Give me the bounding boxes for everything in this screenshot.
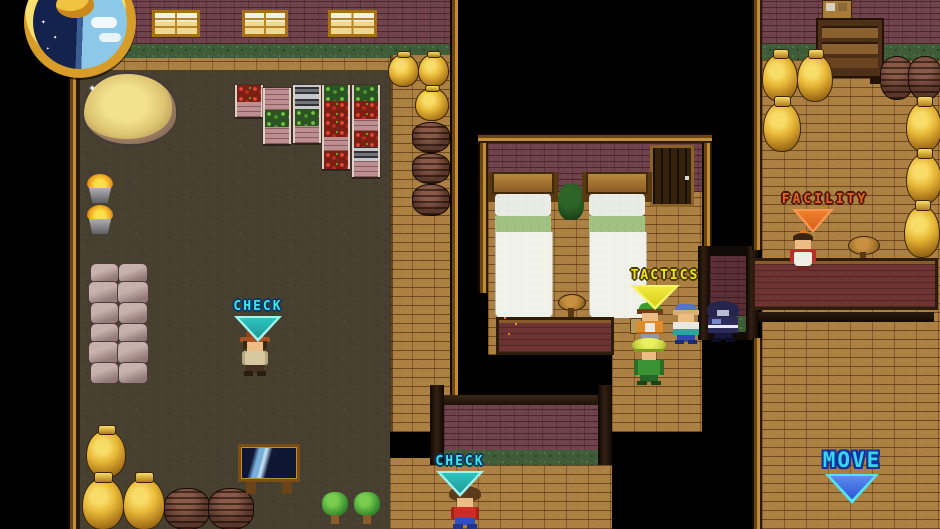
facility-label: FACILITY	[770, 193, 880, 206]
window	[242, 10, 288, 37]
barrel	[412, 153, 450, 184]
right-room-frame-lower	[752, 338, 762, 529]
signboard[interactable]	[238, 444, 300, 496]
npc-innkeeper[interactable]	[786, 230, 820, 272]
window	[152, 10, 200, 37]
facility-marker[interactable]: FACILITY	[770, 193, 880, 233]
right-room-frame-upper	[752, 0, 762, 250]
move-label: MOVE	[812, 450, 892, 471]
gold-urn	[418, 54, 449, 87]
barrel	[908, 56, 940, 100]
target-triangle	[630, 285, 680, 310]
fire-basket[interactable]	[84, 174, 116, 204]
tactics-marker[interactable]: TACTICS	[618, 269, 712, 310]
game-screen: ✦	[0, 0, 940, 529]
bedroom-frame-right	[702, 143, 712, 248]
check-label: CHECK	[226, 300, 290, 313]
check-label: CHECK	[428, 455, 492, 468]
plant	[320, 492, 350, 526]
star-icon: ✦	[46, 45, 50, 52]
npc-green-hat[interactable]	[630, 338, 668, 385]
shelf-unit[interactable]	[263, 88, 291, 144]
check-marker-left[interactable]: CHECK	[226, 300, 290, 342]
gold-urn	[904, 206, 940, 258]
bottom-brick-path	[390, 458, 612, 529]
bedroom-frame-top	[478, 133, 712, 143]
plant	[352, 492, 382, 526]
shelf-unit[interactable]	[352, 85, 380, 177]
haystack[interactable]: ✦	[84, 74, 176, 144]
check-marker-bottom[interactable]: CHECK	[428, 455, 492, 497]
gold-urn	[797, 54, 833, 102]
bed[interactable]	[488, 170, 558, 332]
grain-sack-pile[interactable]	[88, 322, 150, 384]
star-icon: ✦	[53, 33, 57, 41]
wall-post	[598, 385, 612, 465]
gold-urn	[762, 54, 798, 102]
shelf-tomato-crate[interactable]	[235, 85, 263, 117]
wall-rail	[444, 395, 604, 405]
gold-urn	[763, 102, 801, 152]
gold-urn	[123, 478, 165, 529]
right-room-counter[interactable]	[752, 258, 938, 310]
sparkle-icon: ✦	[89, 81, 96, 94]
shelf-unit[interactable]	[293, 85, 321, 143]
gold-urn	[388, 54, 419, 87]
cloud-icon	[91, 17, 117, 28]
move-triangle	[825, 474, 879, 504]
target-triangle	[436, 471, 484, 497]
bedroom-frame-left	[478, 143, 488, 293]
target-triangle	[792, 209, 834, 233]
plant	[558, 184, 584, 220]
gold-urn	[86, 430, 126, 478]
grain-sack-pile[interactable]	[88, 262, 150, 324]
npc-blue-cap[interactable]	[669, 304, 703, 344]
barrel	[164, 488, 210, 529]
shelf-unit[interactable]	[322, 85, 350, 169]
window	[328, 10, 377, 37]
barrel	[412, 122, 450, 153]
target-triangle	[234, 316, 282, 342]
barrel	[412, 184, 450, 216]
gold-urn	[906, 102, 940, 152]
move-marker[interactable]: MOVE	[812, 450, 892, 504]
flower-plant	[498, 310, 526, 350]
gold-urn	[82, 478, 124, 529]
mid-wall	[444, 405, 604, 452]
star-icon: ✦	[41, 17, 46, 26]
bedroom-door[interactable]	[650, 145, 694, 207]
counter-shadow-rail	[758, 312, 934, 322]
tactics-label: TACTICS	[618, 269, 712, 282]
gold-urn	[415, 88, 449, 121]
left-room-frame-left	[68, 0, 80, 529]
fire-basket[interactable]	[84, 205, 116, 235]
gold-urn	[906, 154, 940, 204]
wall-post	[430, 385, 444, 465]
cloud-icon	[99, 33, 121, 42]
